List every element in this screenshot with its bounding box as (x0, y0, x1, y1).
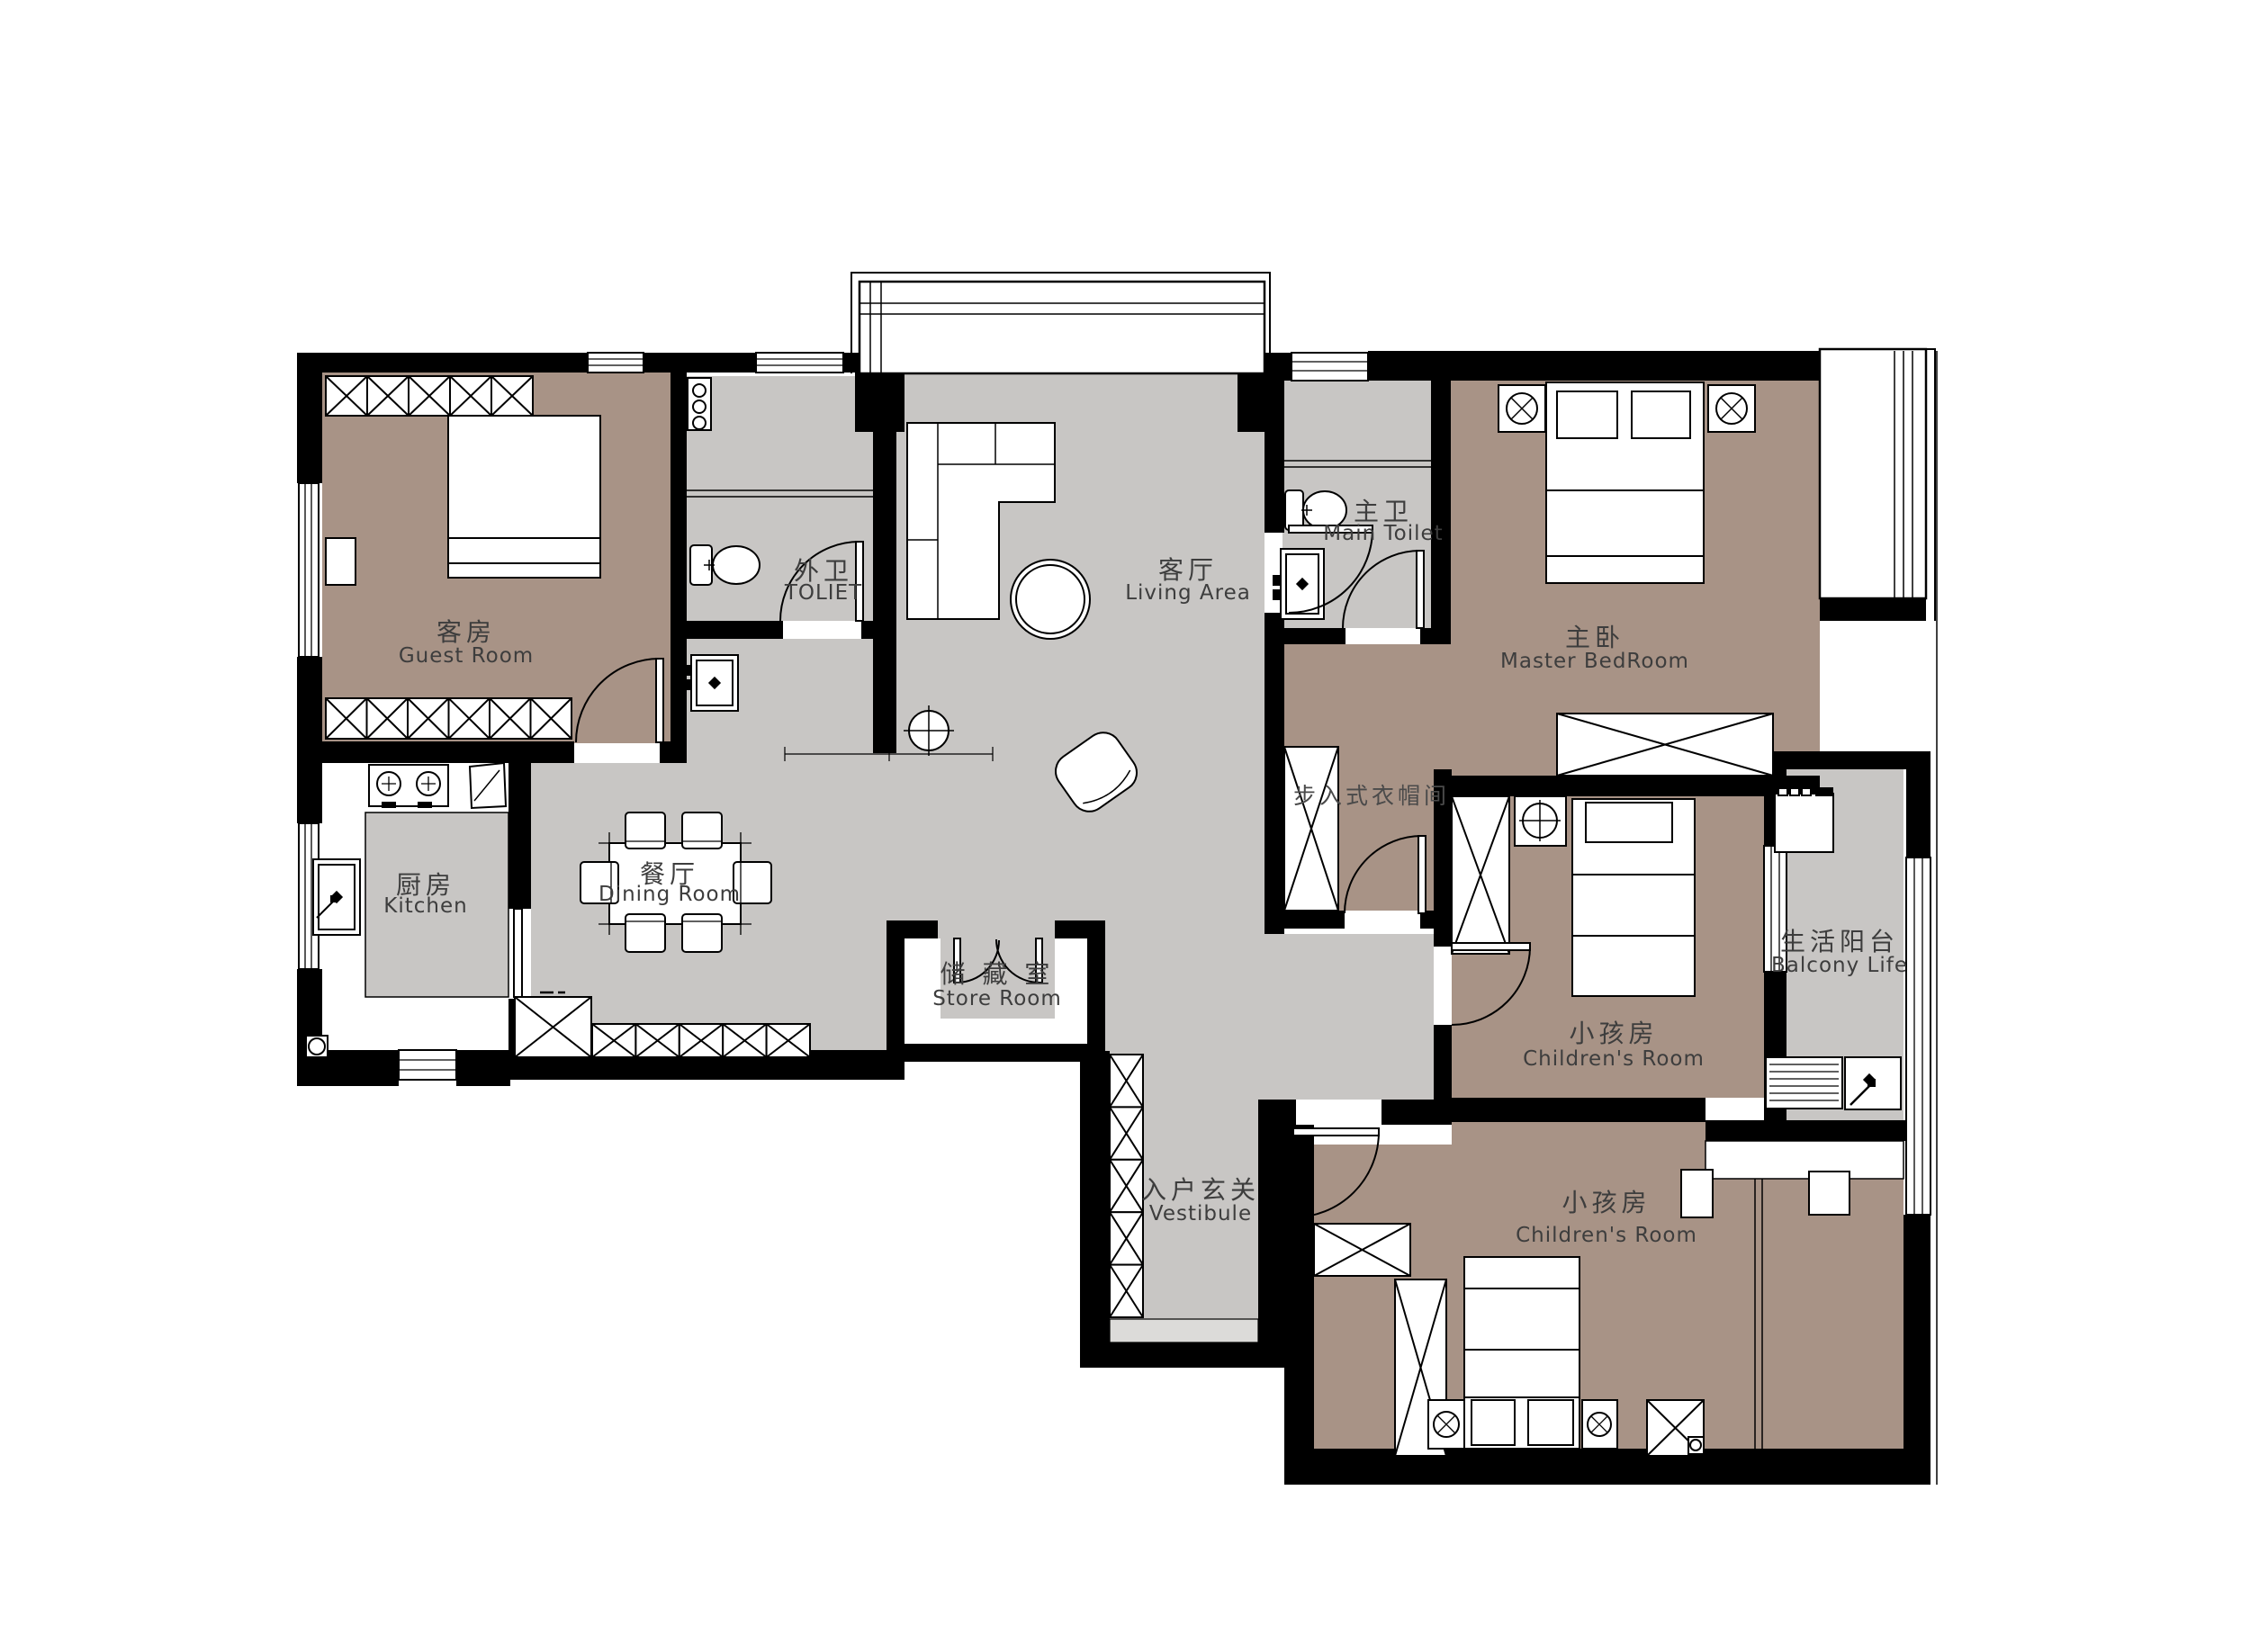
children1-bed (1572, 799, 1695, 996)
wall-segment (1080, 1342, 1284, 1368)
wall-segment (1368, 351, 1840, 381)
wall-segment (456, 1050, 510, 1086)
children2-stool (1809, 1172, 1849, 1215)
wall-segment (886, 1044, 1105, 1062)
kitchen-sink (313, 859, 360, 935)
wall-segment (1906, 765, 1930, 857)
label-children-room-2-en: Children's Room (1516, 1224, 1697, 1247)
label-balcony-en: Balcony Life (1771, 954, 1908, 977)
stove (369, 765, 448, 807)
label-living-area-en: Living Area (1125, 581, 1251, 605)
wall-segment (1284, 1125, 1314, 1485)
label-vestibule-zh: 入户玄关 (1141, 1175, 1260, 1205)
floor-entry-threshold (1110, 1319, 1258, 1342)
wall-segment (297, 657, 322, 747)
wall-segment (1264, 628, 1345, 644)
wall-segment (886, 920, 938, 938)
label-balcony-zh: 生活阳台 (1780, 927, 1899, 956)
bay-window-master (1820, 349, 1935, 621)
kitchen-sliding-door (514, 909, 522, 997)
floor-plan-drawing: 客房 Guest Room 外卫 TOLIET 客厅 Living Area 主… (0, 0, 2250, 1652)
master-nightstand-left (1498, 385, 1545, 432)
wall-segment (1264, 613, 1284, 934)
children1-fan-unit (1515, 796, 1566, 846)
label-store-room-zh: 储 藏 室 (940, 959, 1055, 989)
label-toilet-ext-en: TOLIET (784, 581, 862, 605)
toilet-ext-shelf (688, 378, 711, 430)
wall-segment (1820, 598, 1926, 621)
balcony-outer-ledge (1705, 1141, 1903, 1179)
label-children-room-2-zh: 小孩房 (1561, 1188, 1651, 1217)
children2-wardrobe-top (1314, 1224, 1410, 1276)
floor-drain (306, 1036, 328, 1057)
floor-plan-canvas: 客房 Guest Room 外卫 TOLIET 客厅 Living Area 主… (0, 0, 2250, 1652)
children2-nightstand-right (1582, 1400, 1617, 1449)
label-walkin-closet-zh: 步入式衣帽间 (1293, 783, 1450, 809)
bay-window-living (851, 273, 1270, 373)
floor-corridor (1258, 934, 1434, 1100)
wall-segment (1434, 1025, 1452, 1100)
guest-wardrobe-bottom (326, 698, 571, 739)
wall-segment (643, 353, 756, 373)
wall-segment (1264, 381, 1284, 533)
wall-segment (297, 763, 322, 823)
balcony-sink (1845, 1057, 1901, 1109)
master-wardrobe (1557, 714, 1773, 776)
water-heater (1775, 788, 1833, 852)
label-vestibule-en: Vestibule (1149, 1202, 1252, 1226)
wall-segment (1264, 353, 1291, 381)
children1-wardrobe (1452, 796, 1509, 954)
wall-segment (1080, 1051, 1110, 1343)
shoe-cabinet (1110, 1055, 1143, 1317)
wall-segment (1258, 1100, 1284, 1343)
children2-bed (1464, 1257, 1579, 1449)
window-master-top (1291, 353, 1368, 381)
wash-vanity (682, 655, 738, 711)
label-children-room-1-zh: 小孩房 (1569, 1019, 1658, 1048)
floor-children-room-2 (1705, 1179, 1903, 1449)
wall-segment (873, 373, 896, 753)
wall-segment (1452, 1098, 1705, 1122)
coffee-table (1011, 560, 1090, 639)
wall-segment (297, 353, 322, 483)
label-guest-room-zh: 客房 (436, 617, 496, 647)
label-children-room-1-en: Children's Room (1523, 1047, 1705, 1071)
window-top-toilet (756, 353, 843, 373)
label-main-toilet-en: Main Toilet (1323, 522, 1443, 545)
wall-segment (670, 621, 783, 639)
washing-machine (1766, 1057, 1842, 1109)
label-kitchen-en: Kitchen (383, 894, 467, 918)
guest-nightstand (326, 538, 355, 585)
guest-wardrobe-top (326, 376, 533, 416)
wall-segment (297, 741, 574, 763)
wall-segment (1087, 920, 1105, 1062)
wall-segment (508, 741, 531, 909)
guest-bed (448, 416, 600, 578)
wall-segment (1381, 1100, 1452, 1125)
master-bed (1546, 382, 1704, 583)
floor-master-passage (1431, 644, 1451, 776)
wall-segment (660, 741, 687, 763)
wall-segment (861, 621, 896, 639)
wall-segment (297, 353, 588, 373)
wall-segment (1420, 628, 1451, 644)
ac-platform (1647, 1400, 1704, 1456)
wall-segment (1055, 920, 1105, 938)
toilet-ext-wc (690, 545, 760, 585)
label-master-bedroom-zh: 主卧 (1565, 623, 1624, 652)
wall-segment (1705, 1120, 1930, 1141)
wall-segment (1764, 751, 1930, 769)
wall-segment (1284, 911, 1345, 929)
wall-segment (1431, 381, 1451, 644)
window-kitchen-bottom (399, 1050, 456, 1080)
window-guest-left (299, 483, 319, 657)
children2-stool (1681, 1170, 1713, 1217)
label-dining-room-en: Dining Room (598, 883, 741, 906)
cutting-board (470, 763, 506, 808)
children2-nightstand-left (1428, 1400, 1464, 1449)
label-master-bedroom-en: Master BedRoom (1500, 650, 1689, 673)
label-store-room-en: Store Room (932, 987, 1062, 1010)
master-nightstand-right (1708, 385, 1755, 432)
wall-segment (1903, 1215, 1930, 1485)
closet-wardrobe (1284, 747, 1338, 911)
window-top-guest (588, 353, 643, 373)
label-guest-room-en: Guest Room (399, 644, 534, 668)
wall-segment (886, 920, 904, 1062)
window-balcony-right (1906, 857, 1930, 1215)
